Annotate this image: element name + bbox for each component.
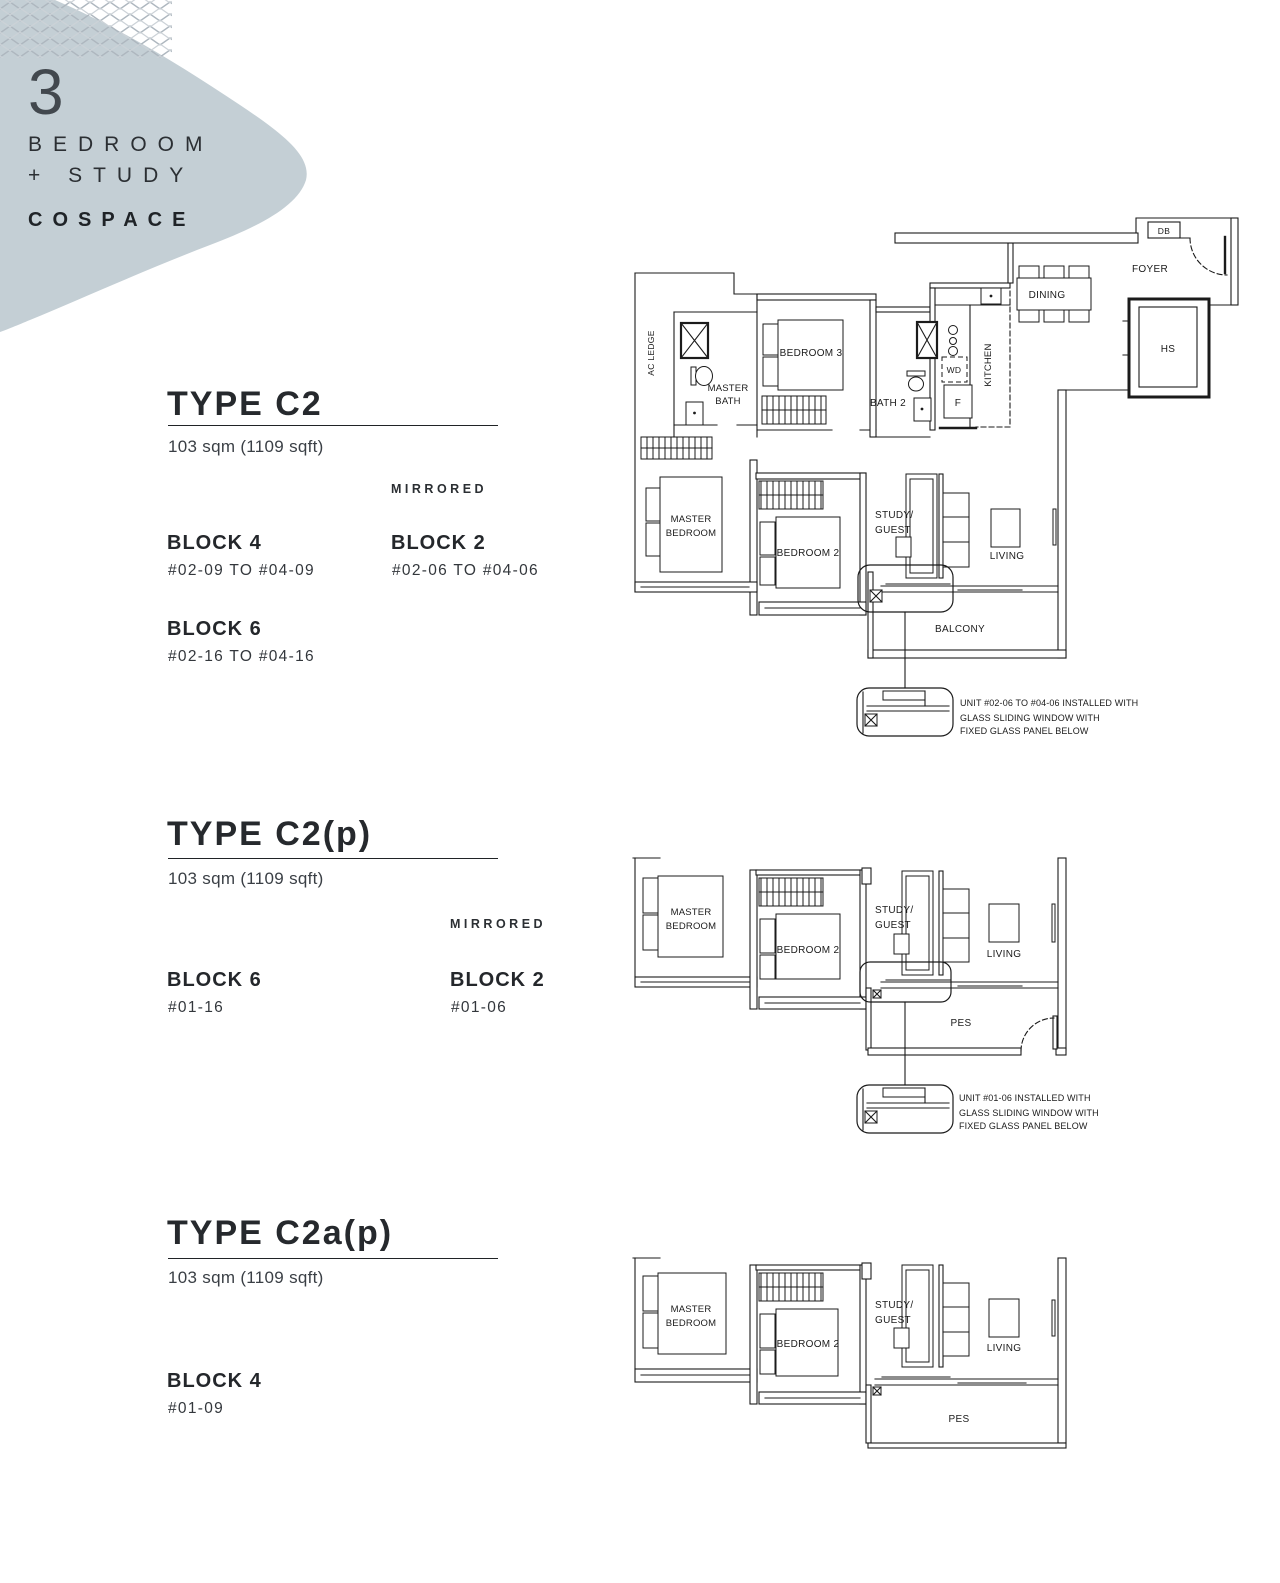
room-label-living: LIVING [987, 949, 1022, 960]
room-label-master-bedroom-2: BEDROOM [666, 528, 717, 539]
room-label-master-bedroom-2: BEDROOM [666, 921, 717, 932]
unit-type-line2: + STUDY [28, 165, 194, 186]
sofa-symbol [943, 889, 969, 962]
room-label-bath2: BATH 2 [870, 398, 906, 409]
window-x-symbol [870, 590, 882, 602]
floor-plan-type-c2ap: MASTER BEDROOM BEDROOM 2 STUDY/ GUEST LI… [620, 1240, 1110, 1470]
room-label-master-bedroom-2: BEDROOM [666, 1318, 717, 1329]
sofa-symbol [943, 1283, 969, 1356]
room-label-kitchen: KITCHEN [983, 343, 994, 386]
room-label-ac-ledge: AC LEDGE [646, 330, 656, 375]
room-label-bedroom2: BEDROOM 2 [777, 945, 840, 956]
section1-title: TYPE C2 [167, 387, 323, 421]
room-label-pes: PES [951, 1018, 972, 1029]
room-label-pes: PES [949, 1414, 970, 1425]
note-line-3: FIXED GLASS PANEL BELOW [960, 726, 1089, 736]
room-label-living: LIVING [990, 551, 1025, 562]
toilet-icon-bath2 [907, 371, 925, 391]
room-label-master-bath-2: BATH [715, 396, 740, 407]
shower-icon-master-bath [681, 323, 708, 358]
room-label-bedroom3: BEDROOM 3 [780, 348, 843, 359]
section1-block4-name: BLOCK 4 [167, 533, 262, 553]
window-x-symbol [873, 1387, 881, 1395]
section3-area: 103 sqm (1109 sqft) [168, 1269, 324, 1286]
section3-block4-units: #01-09 [168, 1401, 224, 1417]
sink-icon-bath2 [914, 398, 931, 421]
sofa-symbol [943, 493, 969, 567]
note-line-1: UNIT #01-06 INSTALLED WITH [959, 1093, 1091, 1103]
furniture [646, 266, 1091, 588]
label-hs: HS [1161, 344, 1176, 355]
section2-rule [168, 858, 498, 859]
section1-block6-units: #02-16 TO #04-16 [168, 649, 315, 665]
section2-block6-units: #01-16 [168, 1000, 224, 1016]
walls [635, 218, 1238, 658]
room-label-master-bath-1: MASTER [708, 383, 749, 394]
section2-block6-name: BLOCK 6 [167, 970, 262, 990]
room-label-study-1: STUDY/ [875, 1300, 913, 1311]
room-label-master-bedroom-1: MASTER [671, 907, 712, 918]
section3-block4-name: BLOCK 4 [167, 1371, 262, 1391]
tv-console [989, 904, 1019, 942]
zigzag-pattern-light [0, 0, 172, 58]
room-label-bedroom2: BEDROOM 2 [777, 548, 840, 559]
unit-type-line1: BEDROOM [28, 134, 214, 155]
window-mark [1052, 904, 1055, 942]
tv-console [991, 509, 1020, 547]
section1-block2-units: #02-06 TO #04-06 [392, 563, 539, 579]
section3-rule [168, 1258, 498, 1259]
label-wd: WD [947, 365, 962, 375]
tv-console [989, 1299, 1019, 1337]
window-mark [1052, 1300, 1055, 1336]
note-line-1: UNIT #02-06 TO #04-06 INSTALLED WITH [960, 698, 1138, 708]
section1-mirrored-label: MIRRORED [391, 483, 487, 496]
room-label-study-1: STUDY/ [875, 510, 913, 521]
brand-name: COSPACE [28, 210, 195, 230]
section2-area: 103 sqm (1109 sqft) [168, 870, 324, 887]
section1-rule [168, 425, 498, 426]
room-label-master-bedroom-1: MASTER [671, 514, 712, 525]
room-label-dining: DINING [1029, 290, 1066, 301]
room-label-master-bedroom-1: MASTER [671, 1304, 712, 1315]
room-label-bedroom2: BEDROOM 2 [777, 1339, 840, 1350]
floor-plan-type-c2: AC LEDGE MASTER BATH BEDROOM 3 BATH 2 WD… [620, 195, 1240, 745]
room-label-balcony: BALCONY [935, 624, 985, 635]
section2-block2-name: BLOCK 2 [450, 970, 545, 990]
note-line-2: GLASS SLIDING WINDOW WITH [959, 1108, 1099, 1118]
section2-title: TYPE C2(p) [167, 817, 372, 851]
room-label-study-1: STUDY/ [875, 905, 913, 916]
room-label-study-2: GUEST [875, 1315, 911, 1326]
room-label-study-2: GUEST [875, 525, 911, 536]
section2-mirrored-label: MIRRORED [450, 918, 546, 931]
callout-detail-drawing [863, 1088, 949, 1130]
kitchen-sink-icon [981, 288, 1001, 304]
window-x-symbol [873, 990, 881, 998]
room-label-living: LIVING [987, 1343, 1022, 1354]
window-hatches [759, 878, 823, 906]
note-line-3: FIXED GLASS PANEL BELOW [959, 1121, 1088, 1131]
section1-block4-units: #02-09 TO #04-09 [168, 563, 315, 579]
note-line-2: GLASS SLIDING WINDOW WITH [960, 713, 1100, 723]
unit-type-number: 3 [28, 60, 64, 124]
sink-icon-master-bath [686, 402, 703, 425]
section1-block6-name: BLOCK 6 [167, 619, 262, 639]
section3-title: TYPE C2a(p) [167, 1216, 393, 1250]
label-fridge: F [955, 398, 961, 409]
section1-area: 103 sqm (1109 sqft) [168, 438, 324, 455]
hob-icon [949, 326, 958, 356]
room-label-study-2: GUEST [875, 920, 911, 931]
window-hatches [759, 1273, 823, 1301]
section2-block2-units: #01-06 [451, 1000, 507, 1016]
brochure-page: 3 BEDROOM + STUDY COSPACE TYPE C2 103 sq… [0, 0, 1280, 1583]
callout-detail-drawing [863, 691, 949, 733]
floor-plan-type-c2p: MASTER BEDROOM BEDROOM 2 STUDY/ GUEST LI… [620, 845, 1110, 1145]
section1-block2-name: BLOCK 2 [391, 533, 486, 553]
label-db: DB [1158, 226, 1170, 236]
shower-icon-bath2 [917, 322, 937, 358]
window-mark [1053, 509, 1056, 545]
room-label-foyer: FOYER [1132, 264, 1168, 275]
